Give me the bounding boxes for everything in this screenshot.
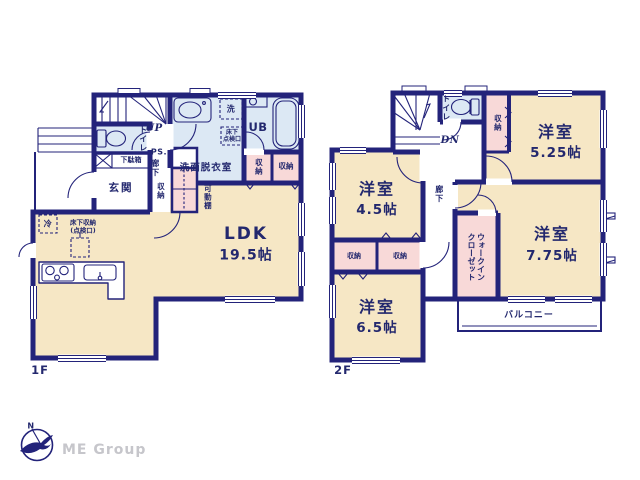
unit-bath-label: UB [248,121,267,135]
room775-label: 洋室 [534,226,570,245]
storage-b-1f-label: 収納 [279,163,294,172]
room45-size-label: 4.5帖 [356,203,397,219]
room65-label: 洋室 [359,299,395,318]
floor2-tag: 2F [334,364,352,378]
room525-size-label: 5.25帖 [530,146,582,162]
balcony-label: バルコニー [504,311,554,322]
movable-shelf-label: 可動棚 [203,184,212,210]
washer-label: 洗 [227,104,236,113]
entrance-door-arc [68,172,94,198]
walk-in-closet-label: ウォークイン クローゼット [467,233,486,281]
room45-label: 洋室 [359,181,395,200]
room65-size-label: 6.5帖 [356,321,397,337]
toilet-1f-label: トイレ [138,126,147,153]
stairs-up-label: UP [145,123,162,135]
room775-size-label: 7.75帖 [526,249,578,265]
shoe-box-label: 下駄箱 [121,156,142,164]
compass-icon [20,429,53,461]
storage-a-2f-label: 収納 [347,252,361,260]
ldk-label: LDK [224,224,268,244]
entrance-steps-icon [35,128,92,212]
toilet-2f-label: トイレ [441,95,450,122]
pipe-shaft-label: PS. [151,147,167,156]
stairs-dn-label: DN [441,135,460,147]
fridge-label: 冷 [44,219,53,228]
hallway-2f-label: 廊下 [434,185,443,203]
floor1-tag: 1F [31,364,49,378]
storage-a-1f-label: 収納 [254,159,263,176]
washroom-label: 洗面脱衣室 [180,162,233,173]
floorplan-page: UP トイレ 下駄箱 玄関 PS. 廊下 収納 可動棚 洗面脱衣室 洗 床下 点… [0,0,640,480]
storage-b-2f-label: 収納 [393,252,407,260]
hall-storage-2f-label: 収納 [493,115,502,132]
underfloor-storage-label: 床下収納 (点検口) [70,219,96,234]
room525-label: 洋室 [538,124,574,143]
underfloor-check-label: 床下 点検口 [223,129,241,143]
logo-text: ME Group [62,442,146,458]
entrance-label: 玄関 [109,182,134,194]
ldk-size-label: 19.5帖 [219,248,273,265]
hallway-1f-label: 廊下 [150,159,159,177]
compass-north-label: N [27,421,34,430]
hall-storage-1f-label: 収納 [156,183,165,200]
movable-shelf-storage [172,168,197,212]
